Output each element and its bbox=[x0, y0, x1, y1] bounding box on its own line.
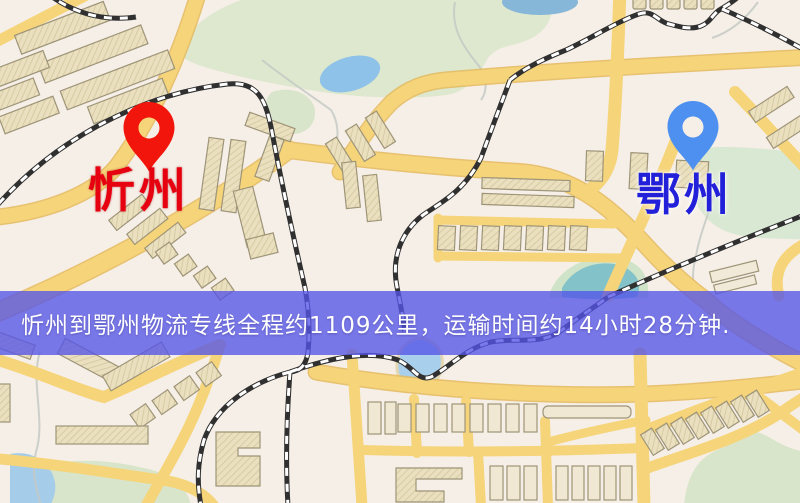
building bbox=[482, 177, 570, 191]
building bbox=[385, 402, 396, 434]
origin-city-label: 忻州 bbox=[88, 168, 190, 215]
building bbox=[481, 226, 499, 251]
building bbox=[524, 404, 537, 432]
building bbox=[507, 466, 520, 500]
route-info-text: 忻州到鄂州物流专线全程约1109公里，运输时间约14小时28分钟. bbox=[21, 306, 730, 340]
building bbox=[434, 404, 447, 432]
road bbox=[362, 448, 642, 451]
building bbox=[452, 404, 465, 432]
building bbox=[459, 226, 477, 251]
map-canvas bbox=[0, 0, 800, 503]
building bbox=[701, 0, 714, 9]
origin-pin-icon bbox=[121, 101, 177, 173]
building bbox=[569, 226, 587, 251]
road bbox=[478, 452, 481, 503]
building bbox=[482, 193, 574, 207]
destination-pin-icon bbox=[665, 100, 721, 172]
building bbox=[556, 466, 568, 500]
building bbox=[0, 384, 10, 422]
building bbox=[470, 404, 483, 432]
building bbox=[524, 466, 537, 500]
building bbox=[416, 404, 429, 432]
building bbox=[650, 0, 663, 9]
building bbox=[437, 226, 455, 251]
logistics-route-map-figure: 忻州 鄂州 忻州到鄂州物流专线全程约1109公里，运输时间约14小时28分钟. bbox=[0, 0, 800, 503]
building bbox=[525, 226, 543, 251]
map-pin-shape bbox=[124, 102, 175, 172]
building bbox=[684, 0, 697, 9]
building bbox=[588, 466, 600, 500]
building bbox=[667, 0, 680, 9]
building bbox=[398, 404, 411, 432]
building bbox=[490, 466, 503, 500]
building bbox=[503, 226, 521, 251]
building bbox=[56, 426, 148, 444]
building bbox=[488, 404, 501, 432]
building bbox=[506, 404, 519, 432]
road bbox=[438, 256, 624, 258]
destination-city-label: 鄂州 bbox=[636, 172, 732, 217]
building bbox=[368, 402, 381, 434]
building bbox=[572, 466, 584, 500]
building bbox=[547, 226, 565, 251]
building bbox=[620, 466, 632, 500]
road bbox=[438, 220, 614, 224]
building bbox=[543, 406, 631, 418]
building bbox=[633, 0, 646, 9]
building bbox=[585, 151, 603, 182]
route-info-banner: 忻州到鄂州物流专线全程约1109公里，运输时间约14小时28分钟. bbox=[0, 291, 800, 355]
building bbox=[216, 432, 260, 486]
road bbox=[466, 401, 469, 452]
building bbox=[604, 466, 616, 500]
map-pin-shape bbox=[668, 101, 719, 171]
road bbox=[545, 421, 548, 503]
